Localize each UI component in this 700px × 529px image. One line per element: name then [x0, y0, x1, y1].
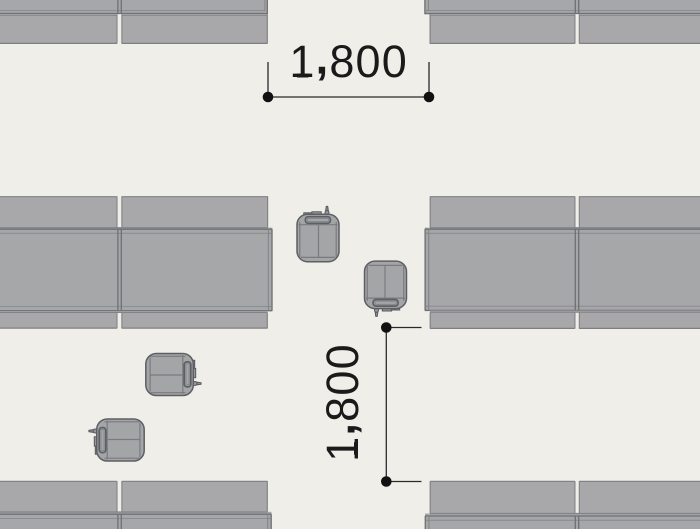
svg-text:1,800: 1,800 — [313, 343, 368, 462]
svg-text:1,800: 1,800 — [289, 33, 408, 88]
